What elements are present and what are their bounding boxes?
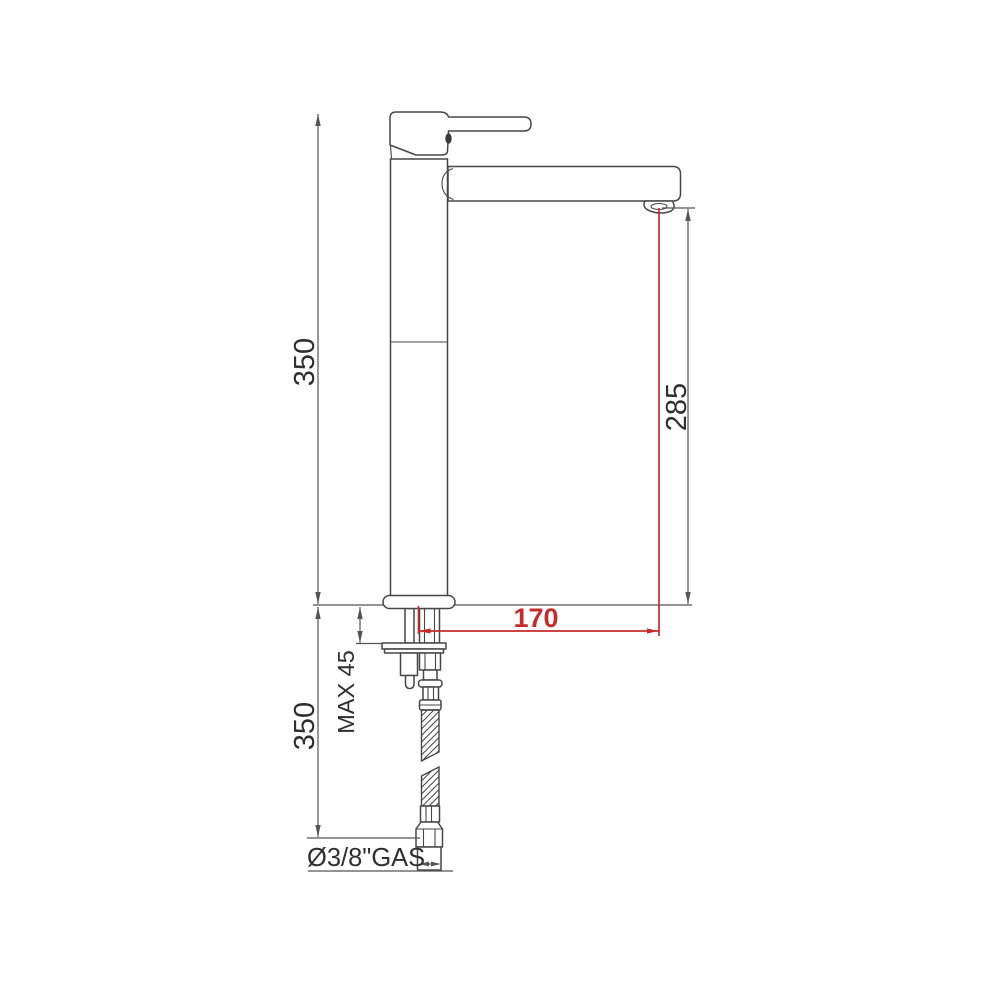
- neck-line: [391, 146, 392, 160]
- mounting-washer-plate: [382, 643, 446, 649]
- supply-pipe: [420, 609, 440, 644]
- dim-spout-height: 285: [661, 208, 695, 604]
- pipe-neck: [424, 670, 438, 680]
- mounting-hardware: [382, 609, 446, 871]
- arrowhead-down: [315, 592, 320, 604]
- arrowhead-down: [357, 631, 362, 643]
- hose-ferrule: [423, 687, 439, 700]
- technical-drawing-canvas: 350 350 MAX 45 285 170 Ø3: [0, 0, 990, 990]
- arrowhead-up: [315, 607, 320, 619]
- red-arrowhead-right: [647, 628, 658, 633]
- dim-label-hose-length: 350: [289, 702, 321, 750]
- arrowhead-up: [315, 114, 320, 126]
- lever-pivot-screw: [445, 133, 451, 143]
- flex-hose-lower: [422, 767, 440, 806]
- threaded-rod: [405, 609, 414, 644]
- hose-collar-upper: [419, 680, 443, 687]
- dim-label-spout-height: 285: [661, 383, 693, 431]
- connector-ferrule: [421, 806, 440, 822]
- faucet-dimension-drawing: 350 350 MAX 45 285 170 Ø3: [0, 0, 990, 990]
- dim-label-max-mounting: MAX 45: [333, 650, 359, 734]
- faucet-head-and-lever: [390, 112, 531, 155]
- dim-label-total-height: 350: [289, 338, 321, 386]
- arrowhead-down: [685, 592, 690, 604]
- arrowhead-up: [685, 209, 690, 221]
- arrowhead-down: [315, 825, 320, 837]
- faucet-body: [391, 159, 448, 596]
- dim-label-connector-size: Ø3/8"GAS: [307, 844, 425, 872]
- pipe-nut: [420, 653, 441, 670]
- rod-fixing-nut: [401, 653, 418, 676]
- dim-max-mounting: MAX 45: [333, 607, 383, 734]
- faucet-spout: [448, 167, 681, 202]
- dim-total-height: 350: [289, 114, 321, 604]
- flex-hose-upper: [422, 710, 440, 761]
- arrowhead-up: [357, 607, 362, 619]
- rod-stud-end: [406, 676, 415, 689]
- dim-spout-reach: 170: [419, 208, 660, 636]
- dim-label-spout-reach: 170: [513, 603, 558, 633]
- faucet-figure: [390, 112, 681, 596]
